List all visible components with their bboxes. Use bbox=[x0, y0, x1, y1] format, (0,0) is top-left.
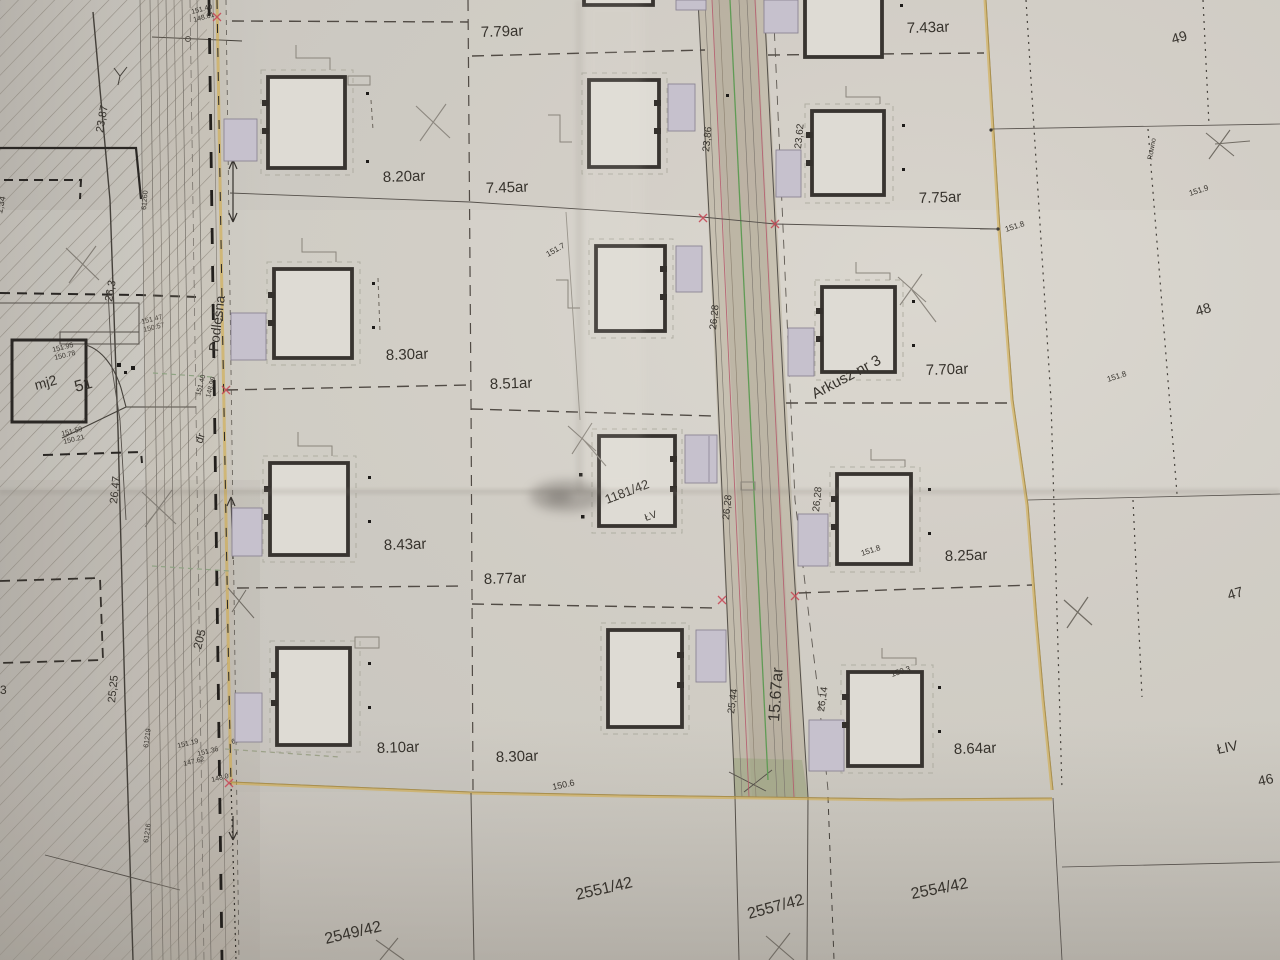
svg-text:3: 3 bbox=[0, 683, 7, 697]
svg-text:7.75ar: 7.75ar bbox=[919, 189, 962, 207]
svg-text:8.30ar: 8.30ar bbox=[496, 748, 539, 766]
svg-text:8.77ar: 8.77ar bbox=[484, 570, 527, 588]
svg-text:8.20ar: 8.20ar bbox=[383, 168, 426, 186]
svg-text:8.25ar: 8.25ar bbox=[945, 547, 988, 565]
svg-text:8.30ar: 8.30ar bbox=[386, 346, 429, 364]
svg-text:7.79ar: 7.79ar bbox=[481, 23, 524, 41]
svg-text:8.43ar: 8.43ar bbox=[384, 536, 427, 554]
svg-text:7.70ar: 7.70ar bbox=[926, 361, 969, 379]
svg-text:7.43ar: 7.43ar bbox=[907, 19, 950, 37]
svg-text:8.64ar: 8.64ar bbox=[954, 740, 997, 758]
svg-text:7.45ar: 7.45ar bbox=[486, 179, 529, 197]
svg-text:8.51ar: 8.51ar bbox=[490, 375, 533, 393]
svg-text:8.10ar: 8.10ar bbox=[377, 739, 420, 757]
